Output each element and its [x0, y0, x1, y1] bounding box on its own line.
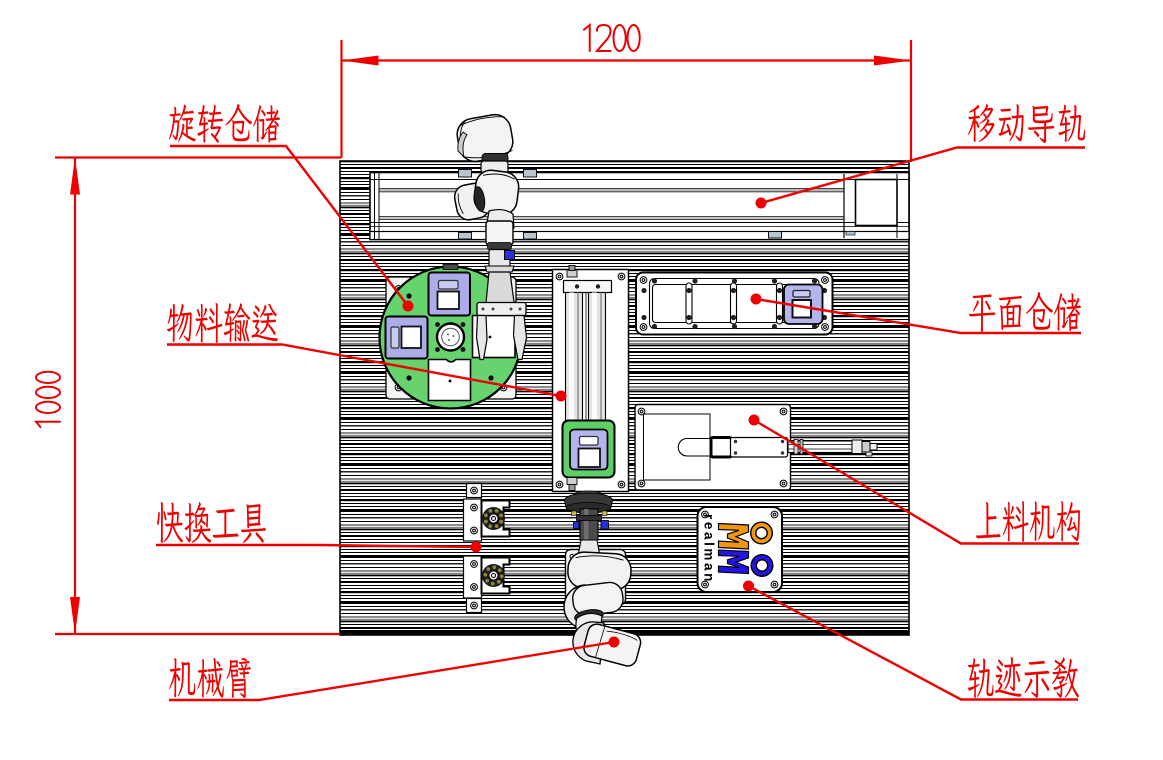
svg-text:realman: realman [702, 514, 717, 584]
